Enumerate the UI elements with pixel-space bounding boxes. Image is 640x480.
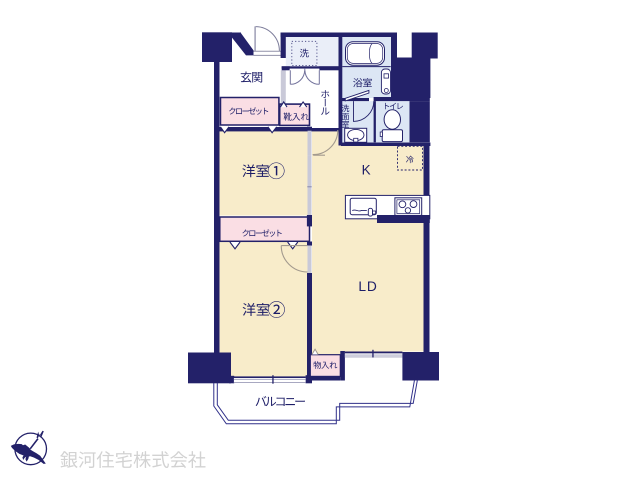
svg-text:LD: LD bbox=[358, 279, 377, 294]
svg-text:K: K bbox=[362, 162, 371, 177]
